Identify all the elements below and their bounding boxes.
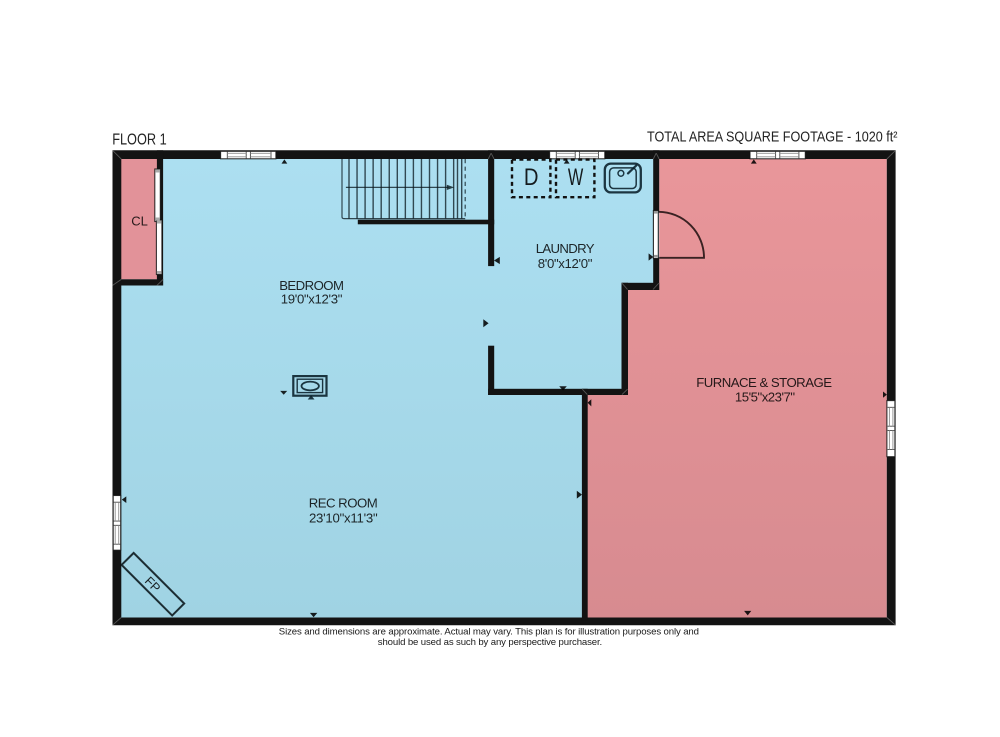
svg-text:19'0"x12'3": 19'0"x12'3" [281,292,343,307]
svg-text:FLOOR 1: FLOOR 1 [112,131,167,148]
svg-text:should be used as such by any: should be used as such by any perspectiv… [378,637,602,648]
svg-text:W: W [568,164,584,191]
svg-text:8'0"x12'0": 8'0"x12'0" [538,256,593,271]
svg-text:D: D [524,164,539,191]
svg-text:23'10"x11'3": 23'10"x11'3" [309,511,378,526]
svg-text:15'5"x23'7": 15'5"x23'7" [735,389,796,404]
svg-text:TOTAL AREA SQUARE FOOTAGE - 10: TOTAL AREA SQUARE FOOTAGE - 1020 ft² [647,130,898,146]
svg-text:CL: CL [131,214,148,229]
svg-text:REC ROOM: REC ROOM [309,496,378,511]
svg-text:Sizes and dimensions are appro: Sizes and dimensions are approximate. Ac… [279,626,699,637]
svg-text:FURNACE & STORAGE: FURNACE & STORAGE [696,375,832,390]
svg-text:LAUNDRY: LAUNDRY [536,241,595,256]
